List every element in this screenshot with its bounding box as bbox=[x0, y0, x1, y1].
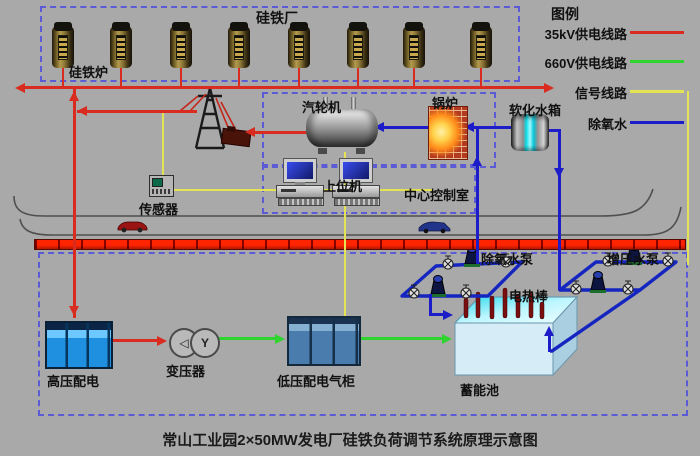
label-boiler: 锅炉 bbox=[432, 93, 458, 112]
legend-title: 图例 bbox=[551, 4, 579, 24]
label-lv-cabinet: 低压配电气柜 bbox=[277, 371, 355, 390]
softened-water-tank bbox=[511, 114, 549, 151]
legend-swatch-660v bbox=[630, 60, 684, 63]
arrow-generator bbox=[245, 127, 255, 137]
arrow-bus-left bbox=[15, 83, 25, 93]
furnace-drop bbox=[238, 66, 240, 87]
water-pump-riser bbox=[476, 129, 479, 264]
furnace-drop bbox=[180, 66, 182, 87]
label-plant: 硅铁厂 bbox=[256, 8, 298, 28]
line-turbine-out bbox=[254, 131, 310, 134]
arrow-feeder-down bbox=[69, 306, 79, 316]
red-car bbox=[118, 222, 147, 232]
legend-swatch-35kv bbox=[630, 31, 684, 34]
label-hv-distribution: 高压配电 bbox=[47, 371, 99, 390]
arrow-pool-in bbox=[442, 334, 452, 344]
cable-tray bbox=[34, 239, 686, 250]
legend-swatch-signal bbox=[630, 90, 684, 93]
line-35kv-bus bbox=[24, 86, 548, 89]
furnace-drop bbox=[62, 66, 64, 87]
sensor-icon bbox=[149, 175, 174, 197]
water-tank-downcomer bbox=[558, 129, 561, 290]
arrow-riser-up bbox=[472, 156, 482, 166]
water-boiler-turbine bbox=[382, 126, 428, 129]
arrow-downcomer bbox=[554, 168, 564, 178]
ferrosilicon-furnace bbox=[110, 26, 132, 68]
line-660v-pool bbox=[358, 337, 444, 340]
legend-swatch-water bbox=[630, 121, 684, 124]
diagram-title: 常山工业园2×50MW发电厂硅铁负荷调节系统原理示意图 bbox=[0, 429, 700, 450]
blue-car bbox=[419, 222, 450, 233]
hv-distribution-cabinet bbox=[45, 321, 113, 369]
furnace-drop bbox=[298, 66, 300, 87]
line-660v-lv bbox=[217, 337, 279, 340]
line-tower-out bbox=[77, 110, 197, 113]
lv-distribution-cabinet bbox=[287, 316, 361, 366]
legend-item-660v: 660V供电线路 bbox=[545, 53, 627, 72]
wye-symbol: Y bbox=[201, 336, 209, 350]
legend-item-35kv: 35kV供电线路 bbox=[545, 24, 627, 43]
label-booster-pumps: 增压水泵 bbox=[607, 249, 659, 268]
legend-item-water: 除氧水 bbox=[588, 114, 627, 133]
furnace-drop bbox=[413, 66, 415, 87]
furnace-drop bbox=[120, 66, 122, 87]
line-35kv-feeder bbox=[73, 87, 76, 318]
label-transformer: 变压器 bbox=[166, 361, 205, 380]
arrow-lv-in bbox=[275, 334, 285, 344]
label-host-computer: 上位机 bbox=[323, 176, 362, 195]
legend-item-signal: 信号线路 bbox=[575, 83, 627, 102]
transformer-secondary-circle: Y bbox=[190, 328, 220, 358]
signal-sensor-up bbox=[162, 113, 164, 176]
label-deaeration-pumps: 除氧水泵 bbox=[481, 249, 533, 268]
system-diagram: ◁ Y 硅铁厂 硅铁炉 汽轮机 锅炉 软化水箱 上位机 中心控制室 传感器 除氧… bbox=[0, 0, 700, 456]
label-control-room: 中心控制室 bbox=[404, 185, 469, 204]
furnace-drop bbox=[357, 66, 359, 87]
arrow-tower-left bbox=[77, 106, 87, 116]
label-turbine: 汽轮机 bbox=[302, 97, 341, 116]
label-furnace: 硅铁炉 bbox=[69, 62, 108, 81]
ferrosilicon-furnace bbox=[470, 26, 492, 68]
label-storage-pool: 蓄能池 bbox=[460, 380, 499, 399]
label-sensor: 传感器 bbox=[139, 199, 178, 218]
ferrosilicon-furnace bbox=[170, 26, 192, 68]
ferrosilicon-furnace bbox=[228, 26, 250, 68]
ferrosilicon-furnace bbox=[403, 26, 425, 68]
furnace-drop bbox=[480, 66, 482, 87]
label-heater-rods: 电热棒 bbox=[509, 286, 548, 305]
arrow-feeder-up bbox=[69, 91, 79, 101]
line-hv-transformer bbox=[110, 339, 160, 342]
delta-symbol: ◁ bbox=[179, 336, 188, 350]
arrow-transformer bbox=[157, 336, 167, 346]
ferrosilicon-furnace bbox=[288, 26, 310, 68]
ferrosilicon-furnace bbox=[347, 26, 369, 68]
arrow-bus-right bbox=[544, 83, 554, 93]
label-softened-tank: 软化水箱 bbox=[509, 100, 561, 119]
arrow-pool-inlet bbox=[443, 310, 453, 320]
host-computer-1 bbox=[276, 158, 324, 205]
signal-right-edge bbox=[687, 91, 689, 265]
arrow-pool-return-up bbox=[544, 326, 554, 336]
boiler-icon bbox=[428, 106, 468, 160]
